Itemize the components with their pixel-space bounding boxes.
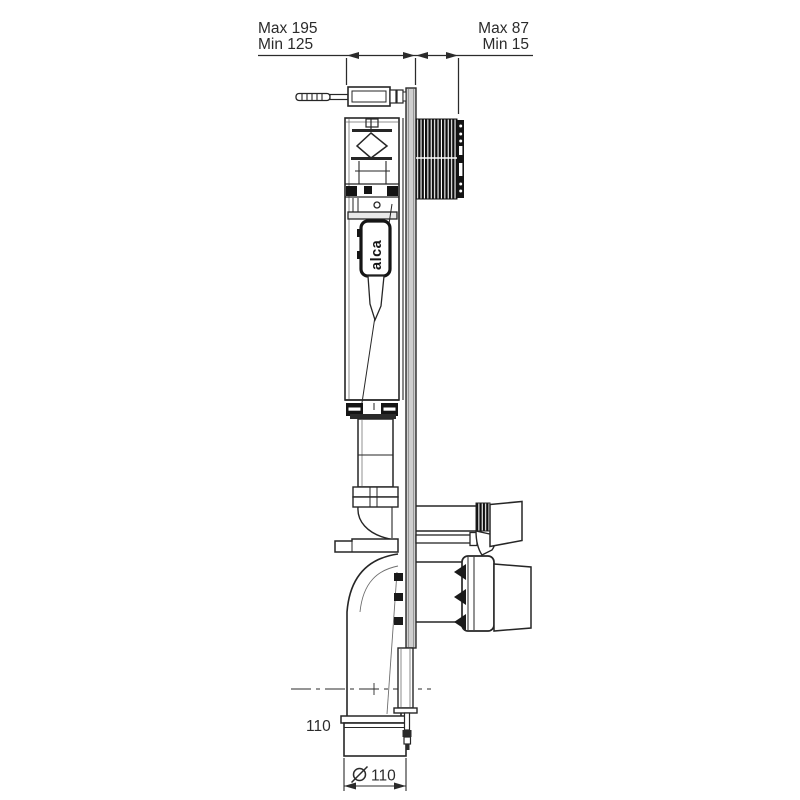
adjuster-nut <box>403 730 412 737</box>
collar <box>462 556 494 631</box>
top-dimension <box>258 56 533 115</box>
outlet-socket <box>341 716 408 756</box>
wall-mounting-plate <box>406 88 416 648</box>
technical-drawing-page: Max 195 Min 125 Max 87 Min 15 <box>0 0 800 800</box>
wall-sleeve-threaded-block <box>416 119 464 199</box>
cistern-diagram-svg: Max 195 Min 125 Max 87 Min 15 <box>0 0 800 800</box>
dim-label-top-left-min: Min 125 <box>258 36 313 53</box>
flush-pipe-end-cap <box>490 502 522 547</box>
dim-label-top-right-min: Min 15 <box>482 36 529 53</box>
alca-logo-text: alca <box>369 239 385 270</box>
mounting-rod <box>416 535 472 543</box>
waste-connector-pipe <box>416 556 531 631</box>
dim-label-top-right-max: Max 87 <box>478 20 529 37</box>
leg-foot <box>394 708 417 713</box>
waste-pipe-end-cap <box>494 564 531 631</box>
flush-connector-pipe <box>416 502 522 556</box>
dim-label-top-left-max: Max 195 <box>258 20 317 37</box>
flush-actuator-rod <box>296 87 406 106</box>
dim-label-outlet-diameter: 110 <box>371 768 396 785</box>
waste-elbow <box>347 554 403 716</box>
dim-label-outlet-height: 110 <box>306 718 331 735</box>
flush-pipe <box>353 419 398 507</box>
flush-bend-bracket <box>335 507 398 552</box>
